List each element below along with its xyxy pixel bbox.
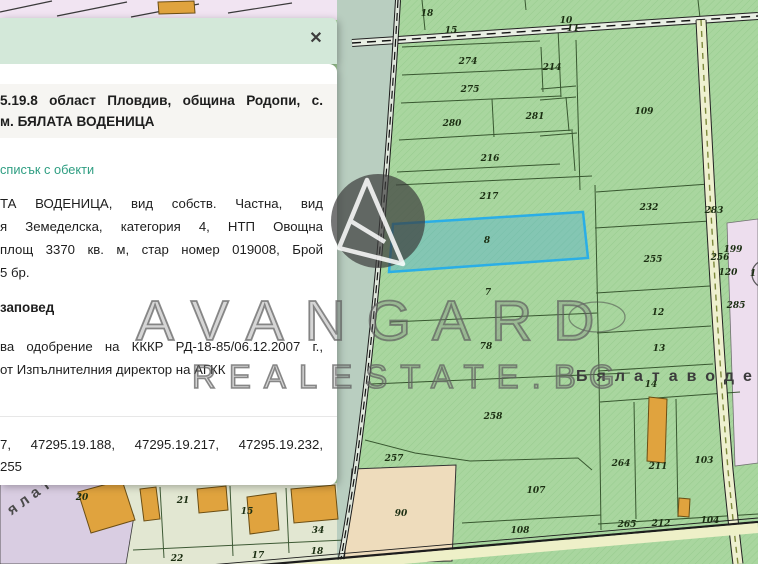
neighbour-parcel-numbers: 7, 47295.19.188, 47295.19.217, 47295.19.… bbox=[0, 434, 323, 478]
close-icon[interactable]: ✕ bbox=[306, 29, 326, 49]
order-line: ва одобрение на КККР РД-18-85/06.12.2007… bbox=[0, 336, 323, 359]
popup-card: 5.19.8 област Пловдив, община Родопи, с.… bbox=[0, 64, 337, 485]
cadastral-map-app: 1815101127421427528028121610921723228382… bbox=[0, 0, 758, 564]
body-line: 5 бр. bbox=[0, 261, 323, 284]
body-line: площ 3370 кв. м, стар номер 019008, Брой bbox=[0, 238, 323, 261]
popup-header: ✕ bbox=[0, 18, 337, 64]
numbers-line: 7, 47295.19.188, 47295.19.217, 47295.19.… bbox=[0, 434, 323, 456]
parcel-description: ТА ВОДЕНИЦА, вид собств. Частна, вид я З… bbox=[0, 192, 323, 284]
title-line-1: 5.19.8 област Пловдив, община Родопи, с. bbox=[0, 90, 323, 111]
order-line: от Изпълнителния директор на АГКК bbox=[0, 359, 323, 382]
title-line-2: м. БЯЛАТА ВОДЕНИЦА bbox=[0, 111, 323, 132]
numbers-line: 255 bbox=[0, 456, 323, 478]
locality-label-right: Бялатаводе bbox=[576, 368, 758, 386]
objects-list-link[interactable]: списък с обекти bbox=[0, 162, 94, 177]
body-line: ТА ВОДЕНИЦА, вид собств. Частна, вид bbox=[0, 192, 323, 215]
info-popup: ✕ 5.19.8 област Пловдив, община Родопи, … bbox=[0, 18, 337, 485]
order-section-heading: заповед bbox=[0, 300, 54, 315]
order-text: ва одобрение на КККР РД-18-85/06.12.2007… bbox=[0, 336, 323, 381]
divider bbox=[0, 416, 337, 417]
parcel-title: 5.19.8 област Пловдив, община Родопи, с.… bbox=[0, 84, 337, 138]
body-line: я Земеделска, категория 4, НТП Овощна bbox=[0, 215, 323, 238]
